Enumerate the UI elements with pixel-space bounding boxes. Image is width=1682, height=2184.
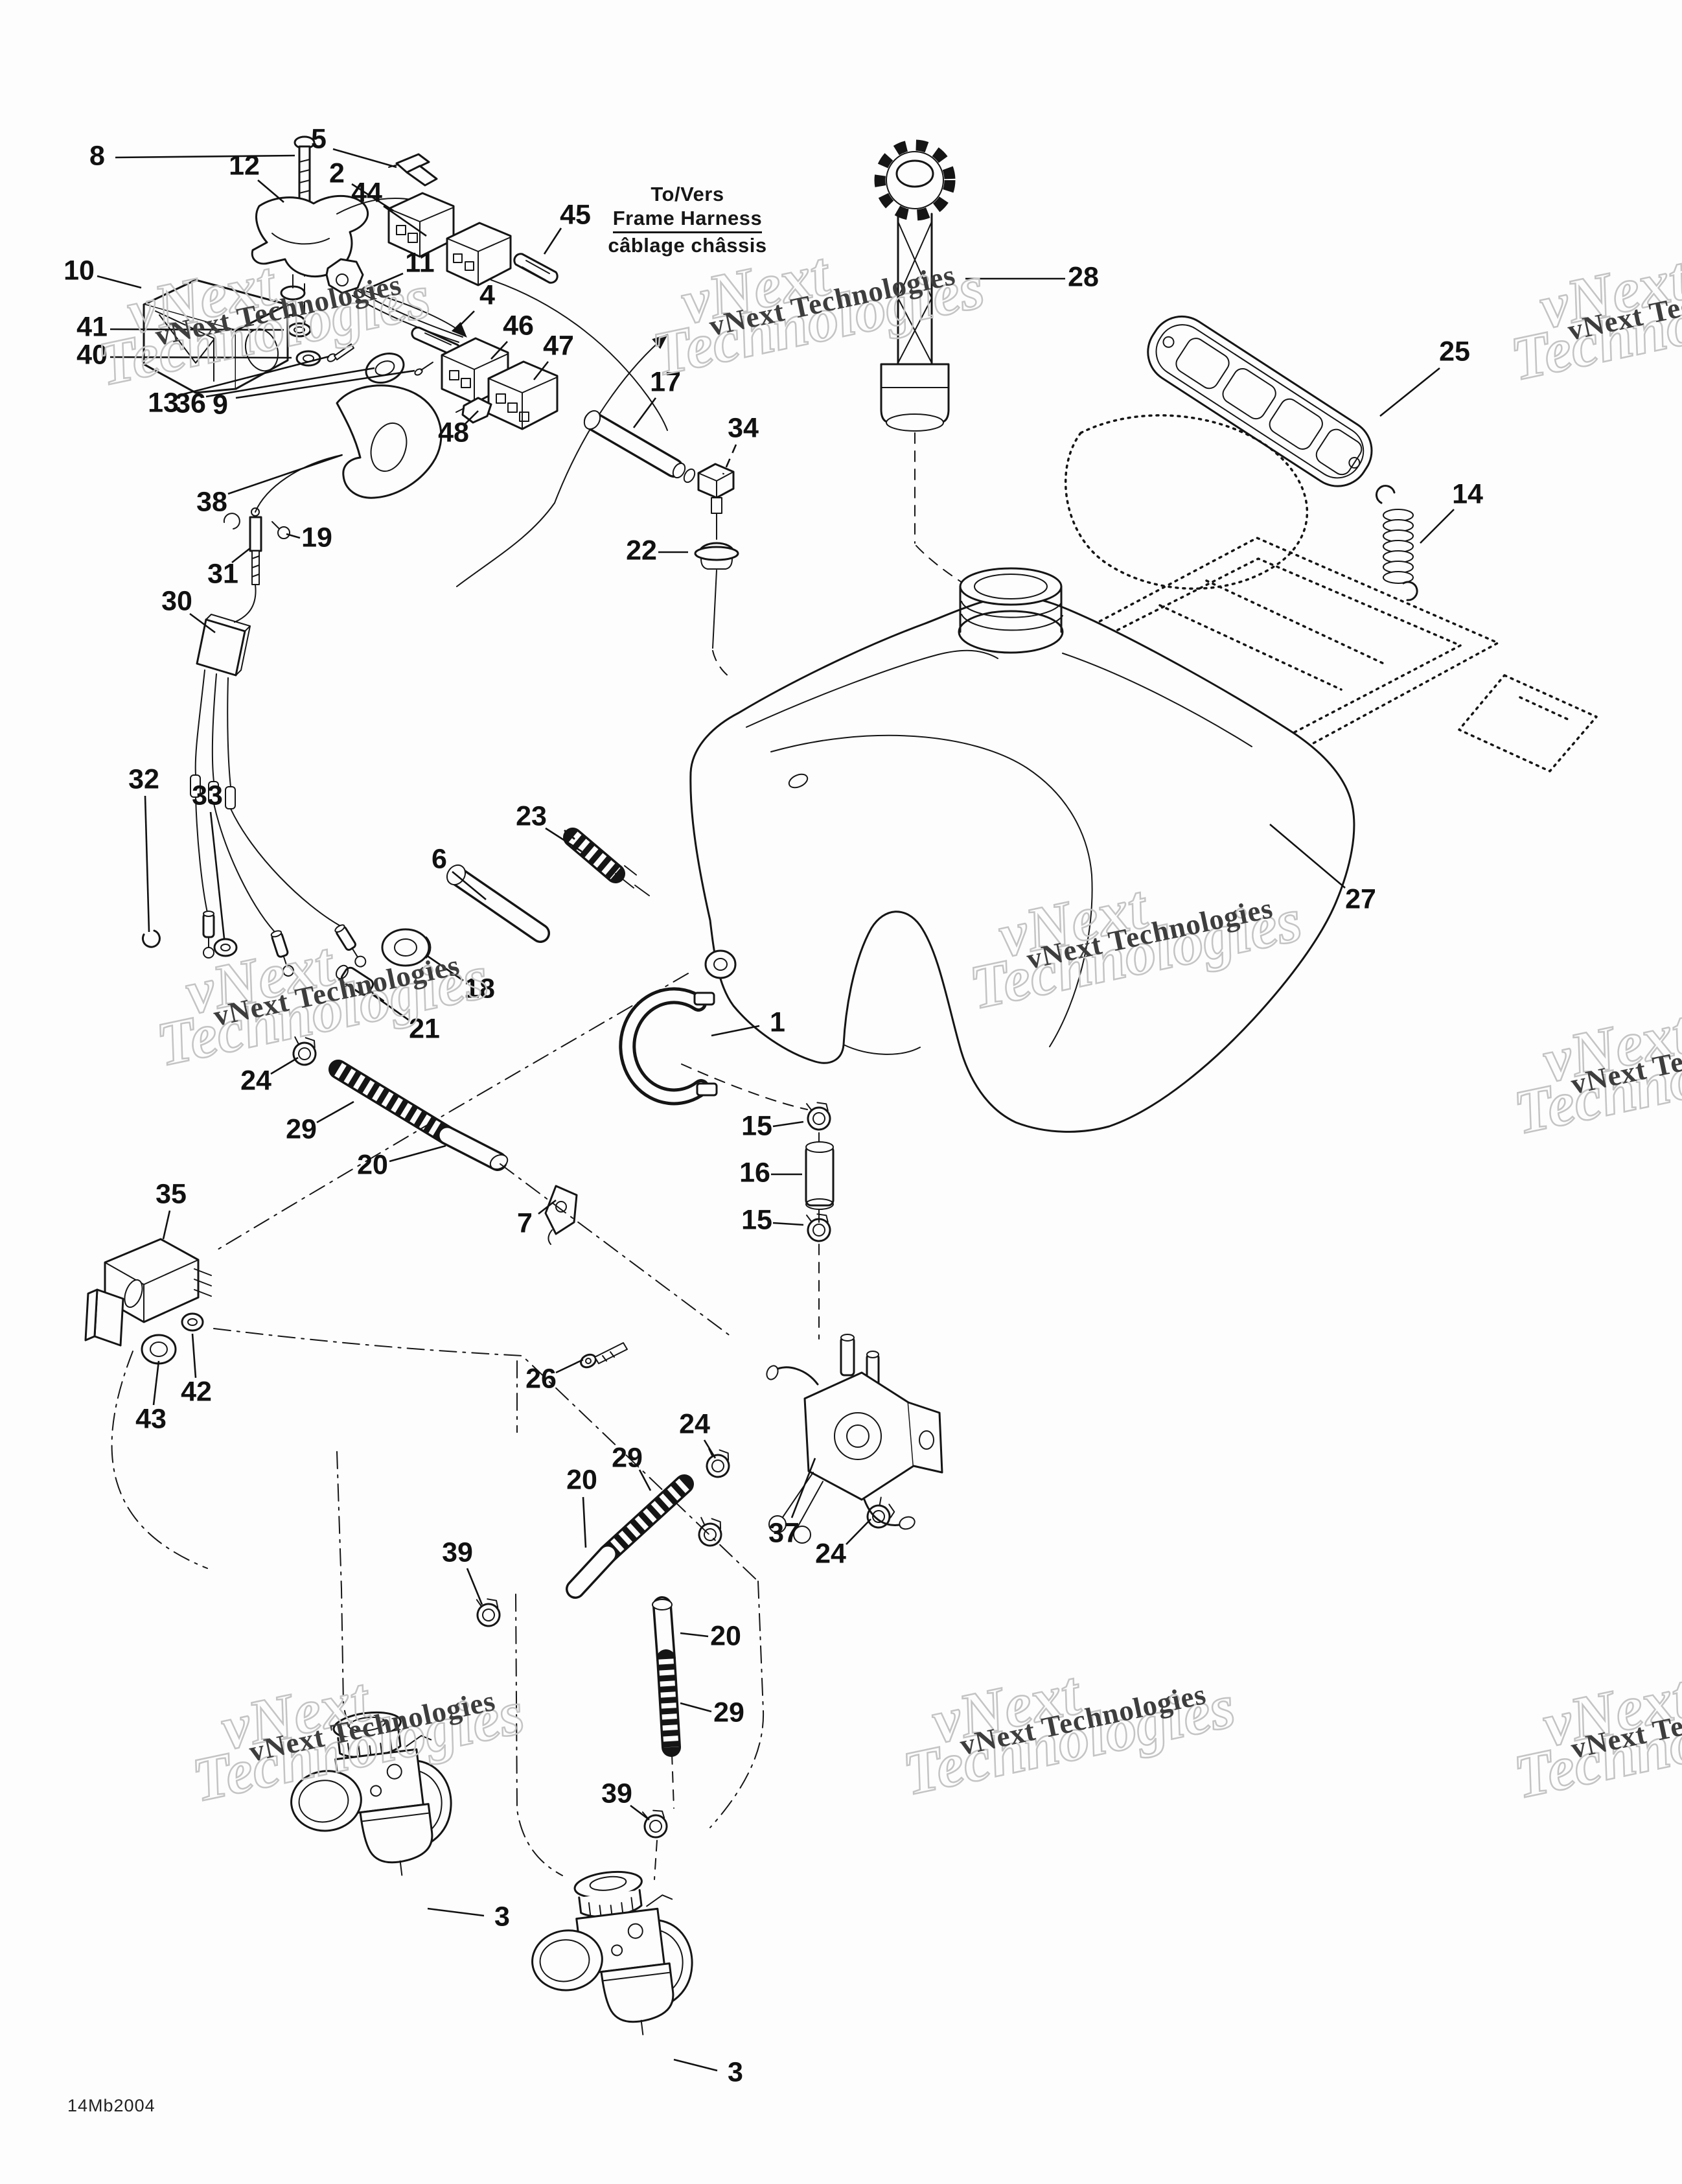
leader-line-21 [372,994,409,1020]
callout-38: 38 [196,455,342,517]
leader-line-20 [583,1497,586,1548]
leader-line-10 [97,276,141,288]
callout-18: 18 [426,955,495,1004]
clamp-extra-drawing [693,1515,726,1549]
callout-number-15: 15 [741,1204,772,1235]
callout-number-24: 24 [815,1538,846,1569]
connector-5-drawing [389,154,437,185]
hose-20a-drawing [447,1135,510,1172]
leader-line-15 [773,1122,803,1126]
leader-line-4 [454,311,474,332]
terminal-45-drawing [514,254,557,283]
leader-line-3 [674,2060,717,2071]
callout-number-3: 3 [494,1901,510,1932]
callout-number-20: 20 [710,1620,741,1651]
callout-number-8: 8 [89,140,105,171]
grommet-18-drawing [382,929,430,966]
callout-22: 22 [626,535,688,566]
callout-26: 26 [525,1360,583,1394]
callout-12: 12 [229,150,284,202]
harness-note-line3: câblage châssis [605,233,770,257]
fitting-21-drawing [334,963,384,1001]
callout-25: 25 [1380,336,1470,416]
clamp-24-drawing-b [701,1446,734,1480]
leader-line-40 [110,357,292,358]
callout-number-41: 41 [76,311,108,342]
fuel-pump-37-drawing [765,1334,942,1543]
screw-13-drawing [326,344,354,363]
callout-number-24: 24 [240,1065,271,1096]
callout-number-32: 32 [128,763,159,795]
fuel-tank-27-drawing [691,568,1354,1132]
harness-note-line2: Frame Harness [613,206,763,233]
pin-9-drawing [414,362,433,376]
leader-line-29 [317,1102,354,1122]
callout-17: 17 [634,366,681,428]
callout-number-43: 43 [135,1403,167,1434]
callout-21: 21 [372,994,440,1044]
callout-number-21: 21 [409,1013,440,1044]
callout-number-20: 20 [357,1149,388,1180]
callout-number-29: 29 [713,1697,744,1728]
callout-number-47: 47 [543,330,574,361]
callout-3: 3 [428,1901,510,1932]
carburetor-3a-drawing [281,1704,459,1887]
callout-number-24: 24 [679,1408,710,1439]
lever-shell-38-drawing [337,386,441,498]
callout-11: 11 [367,247,435,289]
leader-line-12 [258,180,284,202]
callout-number-13: 13 [148,387,179,418]
callout-number-29: 29 [286,1113,317,1144]
callout-10: 10 [63,255,141,288]
callout-number-10: 10 [63,255,95,286]
grommet-22-drawing [695,513,738,678]
callout-number-19: 19 [301,522,332,553]
callout-number-6: 6 [432,843,447,874]
callout-number-31: 31 [207,558,238,589]
callout-24: 24 [815,1519,871,1569]
leader-line-35 [163,1211,170,1239]
callout-16: 16 [739,1157,802,1188]
callout-46: 46 [491,310,534,359]
leader-line-45 [544,228,561,254]
callout-number-9: 9 [213,389,228,420]
callout-31: 31 [207,548,250,589]
callout-number-25: 25 [1439,336,1470,367]
callout-47: 47 [534,330,574,380]
leader-line-20 [680,1633,708,1636]
callout-number-29: 29 [612,1442,643,1473]
callout-14: 14 [1420,478,1483,543]
leader-line-32 [145,796,149,932]
callout-5: 5 [311,123,397,167]
callout-15: 15 [741,1204,803,1235]
clamp-39a-drawing [472,1597,502,1628]
hook-1-drawing [627,993,717,1097]
callout-number-5: 5 [311,123,327,154]
gasket-36-drawing [362,348,408,388]
parts-diagram-page: 8125244451110446474140133694838193130173… [0,0,1682,2184]
leader-line-11 [367,273,403,289]
callout-28: 28 [965,261,1099,292]
spring-14-drawing [1376,486,1417,600]
switch-housing-10-drawing [144,280,288,393]
washer-41-drawing [288,323,310,336]
cable-sheath-6-drawing [443,861,540,933]
callout-20: 20 [566,1464,597,1548]
seal-42-drawing [182,1314,203,1330]
callout-number-14: 14 [1452,478,1483,509]
callout-42: 42 [181,1334,212,1407]
callout-24: 24 [240,1058,298,1096]
leader-line-1 [711,1026,759,1036]
callout-number-12: 12 [229,150,260,181]
callout-number-36: 36 [175,388,206,419]
callout-number-2: 2 [329,157,345,189]
callout-43: 43 [135,1361,167,1434]
callout-number-15: 15 [741,1110,772,1141]
leader-line-29 [680,1703,711,1712]
drawing-code: 14Mb2004 [67,2096,156,2116]
exploded-parts-drawing: 8125244451110446474140133694838193130173… [0,0,1682,2184]
callout-24: 24 [679,1408,715,1458]
washer-33-drawing [214,939,236,956]
leader-line-15 [773,1223,803,1225]
callout-number-17: 17 [650,366,681,397]
leader-line-24 [704,1440,715,1458]
callout-39: 39 [442,1537,482,1605]
callout-number-37: 37 [768,1517,800,1548]
callout-number-27: 27 [1345,883,1376,914]
coil-hose-29a-drawing [338,1069,447,1135]
callout-number-34: 34 [728,412,759,443]
leader-line-38 [228,455,342,494]
callout-number-3: 3 [728,2056,743,2087]
leader-line-3 [428,1909,484,1916]
leader-line-39 [467,1568,482,1605]
callout-number-4: 4 [479,279,495,310]
callout-39: 39 [601,1778,649,1820]
elbow-34-drawing [698,464,733,513]
leader-line-42 [192,1334,196,1378]
callout-number-30: 30 [161,585,192,616]
callout-number-33: 33 [192,780,223,811]
callout-45: 45 [544,199,591,254]
leader-line-25 [1380,368,1440,416]
harness-note-line1: To/Vers [605,182,770,206]
callout-number-35: 35 [156,1178,187,1209]
callout-number-46: 46 [503,310,534,341]
callout-number-20: 20 [566,1464,597,1495]
callout-20: 20 [357,1146,446,1180]
callout-29: 29 [286,1102,354,1144]
callout-number-28: 28 [1068,261,1099,292]
bracket-7-drawing [546,1186,577,1244]
leader-line-26 [556,1360,583,1373]
callout-19: 19 [286,522,332,553]
leader-line-41 [110,329,284,330]
callout-29: 29 [612,1442,651,1491]
callout-8: 8 [89,140,295,171]
callout-number-26: 26 [525,1363,557,1394]
coil-hose-29b-drawing [575,1484,684,1589]
callout-number-45: 45 [560,199,591,230]
callout-3: 3 [674,2056,743,2087]
seal-43-drawing [142,1335,176,1364]
screw-26-drawing [579,1343,627,1370]
leader-line-17 [634,398,656,428]
callout-35: 35 [156,1178,187,1239]
callout-number-16: 16 [739,1157,770,1188]
callout-number-7: 7 [517,1207,533,1238]
callout-number-18: 18 [464,973,495,1004]
callout-34: 34 [723,412,759,474]
leader-line-39 [630,1806,649,1820]
callout-number-39: 39 [601,1778,632,1809]
leader-line-14 [1420,509,1454,543]
callout-4: 4 [454,279,495,332]
circlip-32-drawing [143,931,159,947]
callout-number-38: 38 [196,486,227,517]
leader-line-37 [792,1458,815,1518]
fuel-filter-assembly-drawing [682,1064,833,1339]
carburetor-3b-drawing [522,1863,700,2047]
leader-line-18 [426,955,463,981]
adjuster-spring-23-drawing [565,831,649,896]
clamp-24-drawing-a [288,1034,320,1067]
callout-number-40: 40 [76,339,108,370]
callout-32: 32 [128,763,159,932]
leader-line-43 [154,1361,159,1405]
callout-15: 15 [741,1110,803,1141]
callout-number-22: 22 [626,535,657,566]
callout-number-1: 1 [770,1006,785,1038]
support-bracket-25-drawing [1136,305,1383,498]
callout-number-42: 42 [181,1376,212,1407]
callout-29: 29 [680,1697,744,1728]
connector-44-drawing [447,223,511,285]
fuel-gauge-28-drawing [880,145,993,600]
callout-20: 20 [680,1620,741,1651]
harness-note: To/Vers Frame Harness câblage châssis [605,182,770,258]
leader-line-20 [389,1146,446,1161]
hose-20c-29c-drawing [641,1599,674,1879]
callout-number-48: 48 [438,417,469,448]
callout-number-11: 11 [405,247,434,278]
leader-line-24 [846,1519,871,1544]
callout-number-23: 23 [516,800,547,831]
callout-number-44: 44 [351,177,382,208]
leader-line-8 [115,156,295,157]
leader-line-24 [271,1058,298,1074]
callout-48: 48 [438,411,478,448]
callout-number-39: 39 [442,1537,473,1568]
